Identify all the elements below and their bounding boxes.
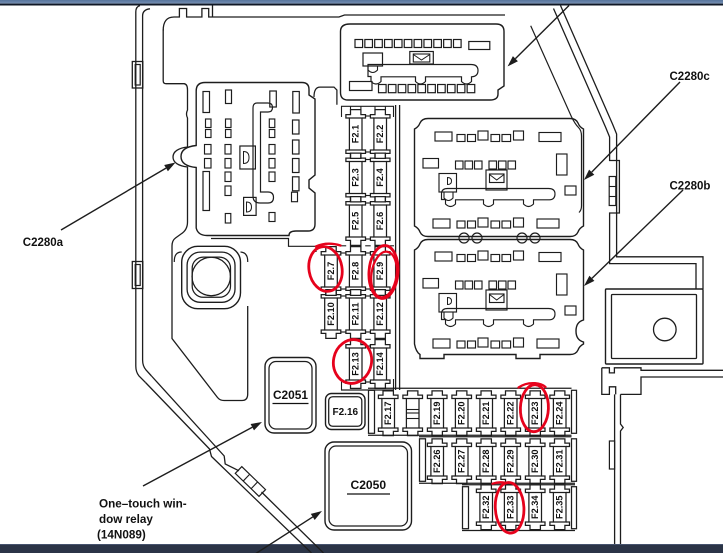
svg-text:F2.32: F2.32	[481, 496, 491, 520]
svg-text:F2.3: F2.3	[351, 168, 361, 186]
svg-text:F2.1: F2.1	[351, 125, 361, 143]
svg-text:F2.13: F2.13	[351, 352, 361, 376]
svg-text:F2.8: F2.8	[351, 262, 361, 280]
svg-text:F2.29: F2.29	[506, 450, 516, 474]
svg-text:F2.17: F2.17	[383, 402, 393, 426]
svg-text:F2.4: F2.4	[375, 167, 385, 186]
svg-text:(14N089): (14N089)	[97, 529, 146, 542]
svg-text:F2.9: F2.9	[375, 262, 385, 280]
svg-text:F2.14: F2.14	[375, 351, 385, 375]
svg-text:F2.5: F2.5	[351, 212, 361, 230]
svg-text:F2.19: F2.19	[432, 402, 442, 426]
svg-text:dow relay: dow relay	[99, 513, 153, 526]
svg-text:F2.2: F2.2	[375, 125, 385, 143]
svg-text:F2.16: F2.16	[333, 407, 359, 418]
svg-text:F2.30: F2.30	[530, 450, 540, 474]
svg-text:F2.10: F2.10	[326, 302, 336, 326]
svg-text:One–touch win-: One–touch win-	[99, 498, 187, 511]
svg-text:F2.33: F2.33	[506, 496, 516, 520]
svg-text:C2051: C2051	[273, 388, 308, 402]
svg-text:C2280a: C2280a	[23, 237, 64, 249]
svg-text:C2050: C2050	[350, 478, 386, 492]
svg-text:F2.23: F2.23	[530, 402, 540, 426]
svg-text:F2.31: F2.31	[555, 450, 565, 474]
svg-text:F2.20: F2.20	[457, 402, 467, 426]
svg-text:C2280c: C2280c	[670, 71, 711, 83]
svg-text:F2.24: F2.24	[555, 401, 565, 425]
svg-text:F2.34: F2.34	[530, 495, 540, 519]
svg-text:F2.12: F2.12	[375, 302, 385, 326]
svg-text:F2.22: F2.22	[506, 402, 516, 426]
svg-text:F2.21: F2.21	[481, 402, 491, 426]
svg-text:C2280b: C2280b	[670, 181, 711, 193]
svg-text:F2.6: F2.6	[375, 212, 385, 230]
svg-text:F2.7: F2.7	[326, 262, 336, 280]
svg-text:F2.27: F2.27	[457, 450, 467, 474]
svg-text:F2.26: F2.26	[432, 450, 442, 474]
svg-text:F2.28: F2.28	[481, 450, 491, 474]
svg-text:F2.35: F2.35	[555, 496, 565, 520]
svg-text:F2.11: F2.11	[351, 303, 361, 326]
